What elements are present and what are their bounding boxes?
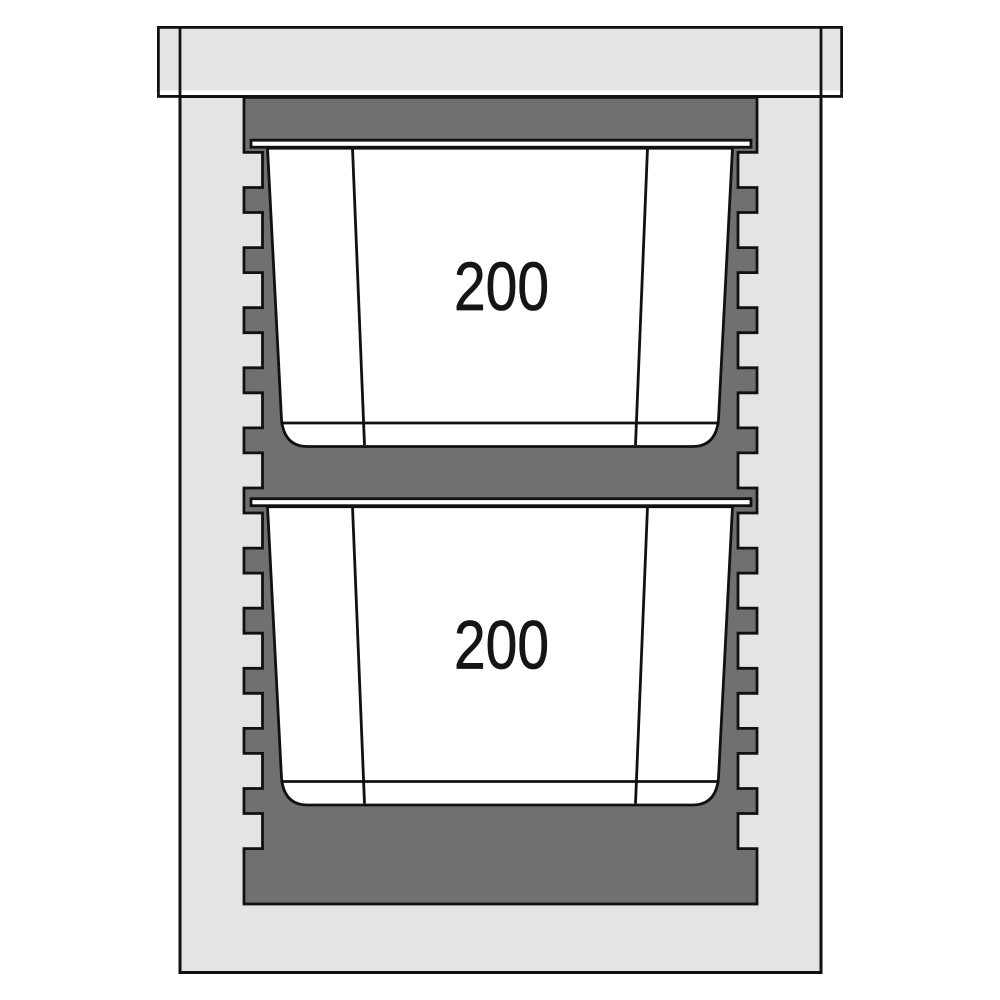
- svg-text:200: 200: [454, 608, 549, 684]
- svg-text:200: 200: [454, 249, 549, 325]
